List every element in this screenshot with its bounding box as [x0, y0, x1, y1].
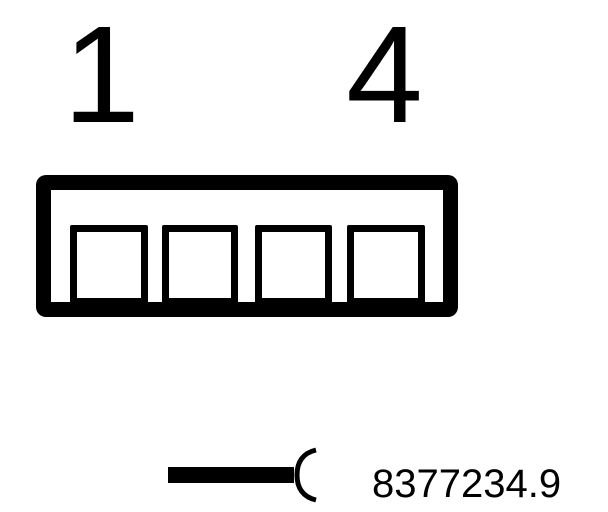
pin-slot-1	[70, 225, 148, 305]
part-number: 8377234.9	[372, 464, 561, 504]
pin-slot-4	[347, 225, 425, 305]
pin-slot-2	[162, 225, 238, 305]
wire-end-socket-icon	[160, 440, 330, 510]
pin-slot-3	[255, 225, 332, 305]
open-socket-fork	[297, 450, 316, 500]
wire-line	[168, 467, 294, 483]
pin-number-label-last: 4	[346, 6, 423, 144]
pin-number-label-first: 1	[63, 6, 140, 144]
connector-pinout-diagram: 1 4 8377234.9	[0, 0, 608, 512]
